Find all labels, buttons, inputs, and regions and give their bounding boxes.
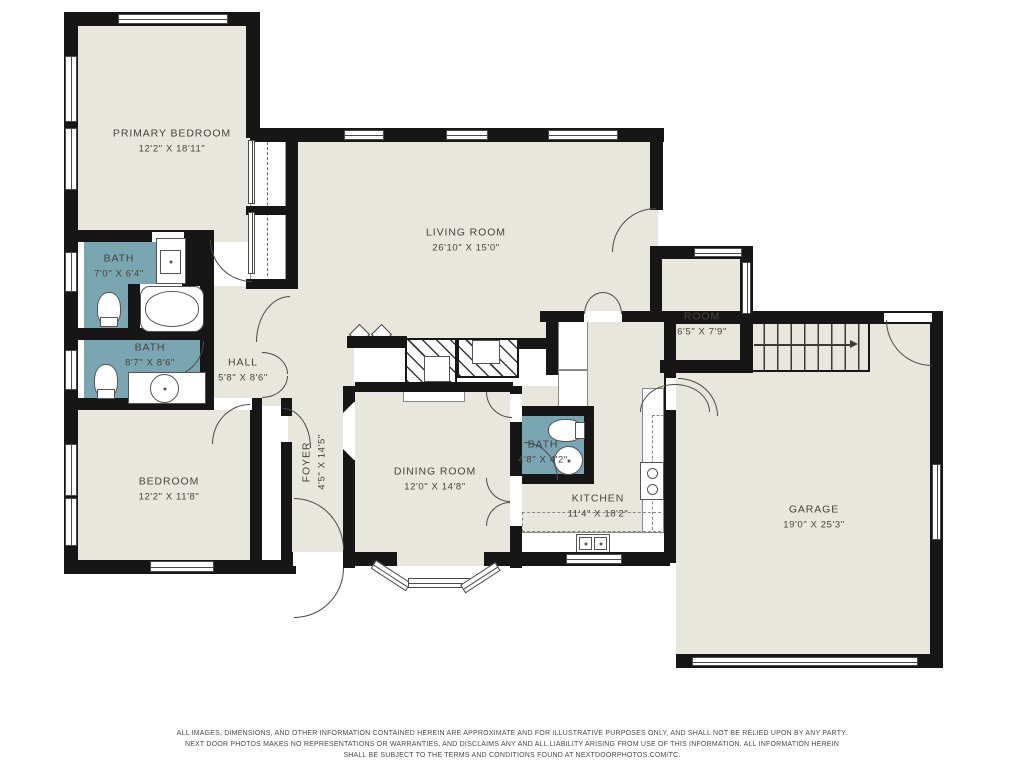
stairs-arrow-icon	[850, 340, 858, 348]
room-dims: 12'2" X 11'8"	[139, 492, 200, 503]
wall	[650, 140, 663, 210]
window-icon	[344, 130, 384, 140]
wall	[514, 406, 594, 416]
window-icon	[65, 444, 77, 496]
opening-jamb-icon	[343, 402, 354, 413]
room-name: FOYER	[301, 434, 313, 490]
wall	[355, 382, 513, 392]
room-label-bath-primary: BATH 7'0" X 6'4"	[94, 253, 144, 280]
wall	[246, 279, 298, 289]
room-name: BATH	[125, 342, 175, 354]
room-dims: 4'5" X 14'5"	[317, 434, 328, 490]
front-door-opening	[293, 552, 343, 566]
room-dims: 4'8" X 4'2"	[518, 455, 568, 466]
window-icon	[742, 262, 751, 314]
room-dims: 19'0" X 25'3"	[783, 520, 845, 531]
room-label-bath-small: BATH 4'8" X 4'2"	[518, 439, 568, 466]
window-icon	[566, 554, 622, 564]
sink-icon	[160, 250, 181, 274]
room-dims: 12'2" X 18'11"	[113, 144, 231, 155]
pantry-counter	[558, 316, 588, 370]
room-name: BATH	[94, 253, 144, 265]
room-dims: 7'0" X 6'4"	[94, 269, 144, 280]
room-dims: 5'8" X 8'6"	[218, 373, 268, 384]
window-icon	[65, 128, 77, 190]
disclaimer-line-1: ALL IMAGES, DIMENSIONS, AND OTHER INFORM…	[112, 729, 912, 740]
room-dims: 8'7" X 8'6"	[125, 358, 175, 369]
front-door-arc-icon	[294, 568, 344, 618]
room-name: BATH	[518, 439, 568, 451]
room-label-dining-room: DINING ROOM 12'0" X 14'8"	[394, 466, 476, 493]
window-icon	[446, 130, 488, 140]
room-label-bedroom: BEDROOM 12'2" X 11'8"	[139, 476, 200, 503]
wall	[584, 406, 594, 484]
fireplace-box	[424, 356, 450, 382]
room-name: KITCHEN	[568, 493, 629, 505]
wall	[347, 336, 407, 348]
toilet-icon	[94, 364, 118, 398]
room-name: HALL	[218, 357, 268, 369]
room-dims: 6'5" X 7'9"	[677, 327, 727, 338]
stairs-direction-line	[754, 344, 852, 346]
floor-plan: PRIMARY BEDROOM 12'2" X 18'11" LIVING RO…	[0, 0, 1024, 768]
room-label-room: ROOM 6'5" X 7'9"	[677, 311, 727, 338]
sliding-door-icon	[248, 140, 255, 204]
room-label-foyer: FOYER 4'5" X 14'5"	[301, 434, 328, 490]
room-label-kitchen: KITCHEN 11'4" X 18'2"	[568, 493, 629, 520]
stove-icon	[640, 462, 664, 500]
room-label-garage: GARAGE 19'0" X 25'3"	[783, 504, 845, 531]
wall	[664, 311, 676, 563]
window-icon	[932, 464, 941, 540]
window-icon	[65, 56, 77, 122]
room-label-bath-hall: BATH 8'7" X 8'6"	[125, 342, 175, 369]
toilet-icon	[97, 292, 121, 326]
wall	[250, 398, 262, 574]
room-name: ROOM	[677, 311, 727, 323]
room-dims: 11'4" X 18'2"	[568, 509, 629, 520]
garage-door-icon	[692, 657, 918, 666]
wall	[546, 315, 558, 375]
room-name: PRIMARY BEDROOM	[113, 128, 231, 140]
room-dims: 26'10" X 15'0"	[426, 243, 506, 254]
disclaimer-text: ALL IMAGES, DIMENSIONS, AND OTHER INFORM…	[112, 729, 912, 762]
window-icon	[65, 350, 77, 390]
window-icon	[65, 498, 77, 546]
room-name: LIVING ROOM	[426, 227, 506, 239]
room-name: BEDROOM	[139, 476, 200, 488]
door-arc-icon	[210, 240, 252, 282]
room-name: GARAGE	[783, 504, 845, 516]
room-label-primary-bedroom: PRIMARY BEDROOM 12'2" X 18'11"	[113, 128, 231, 155]
window-icon	[65, 252, 77, 292]
bathtub-icon	[140, 286, 204, 332]
door-opening	[510, 476, 522, 526]
disclaimer-line-3: SHALL BE SUBJECT TO THE TERMS AND CONDIT…	[112, 751, 912, 762]
room-dims: 12'0" X 14'8"	[394, 482, 476, 493]
wall	[540, 311, 586, 322]
window-icon	[694, 248, 742, 257]
opening-jamb-icon	[343, 449, 354, 460]
window-icon	[150, 561, 214, 572]
window-icon	[118, 14, 228, 24]
window-icon	[548, 130, 618, 140]
wall	[622, 311, 664, 322]
wall	[246, 12, 260, 138]
room-name: DINING ROOM	[394, 466, 476, 478]
chimney-box	[472, 340, 500, 364]
room-label-living-room: LIVING ROOM 26'10" X 15'0"	[426, 227, 506, 254]
kitchen-sink-icon	[576, 534, 610, 554]
disclaimer-line-2: NEXT DOOR PHOTOS MAKES NO REPRESENTATION…	[112, 740, 912, 751]
sink-icon	[150, 374, 179, 403]
wall	[281, 442, 292, 566]
wall	[345, 552, 397, 566]
room-label-hall: HALL 5'8" X 8'6"	[218, 357, 268, 384]
